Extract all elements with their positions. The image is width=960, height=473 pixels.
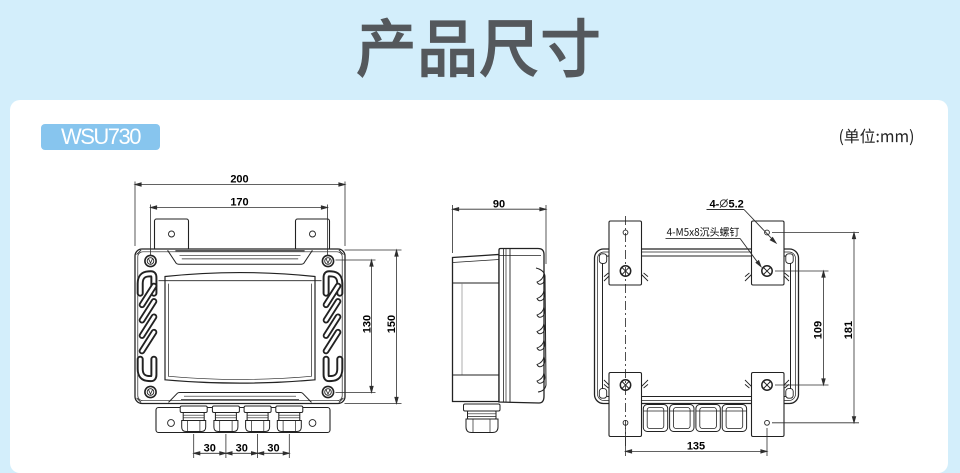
svg-text:170: 170 xyxy=(230,197,248,209)
svg-text:5.2: 5.2 xyxy=(729,199,744,211)
svg-text:4-: 4- xyxy=(710,199,720,211)
svg-text:30: 30 xyxy=(236,443,248,455)
svg-text:109: 109 xyxy=(813,321,825,339)
svg-text:200: 200 xyxy=(230,174,248,186)
svg-text:130: 130 xyxy=(361,315,373,333)
svg-text:150: 150 xyxy=(386,315,398,333)
svg-text:90: 90 xyxy=(493,198,505,210)
svg-text:181: 181 xyxy=(843,321,855,339)
svg-text:135: 135 xyxy=(687,441,705,453)
svg-text:30: 30 xyxy=(204,443,216,455)
svg-text:30: 30 xyxy=(267,443,279,455)
